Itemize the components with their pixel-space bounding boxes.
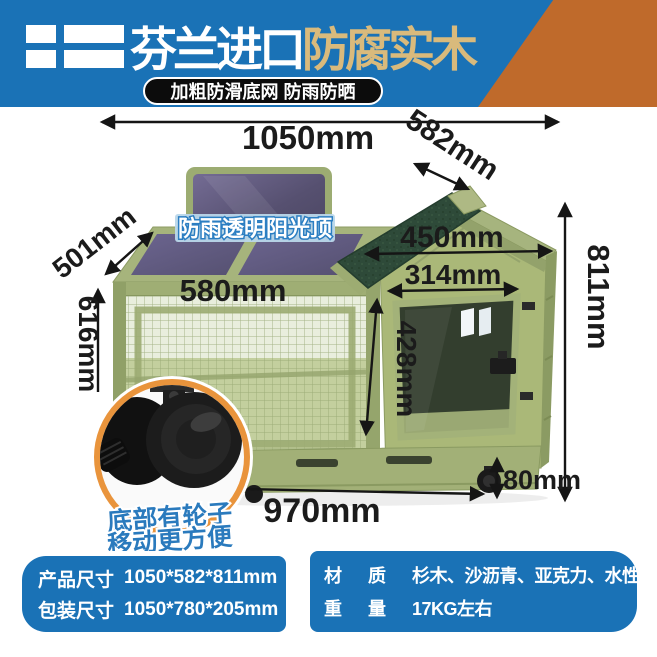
- dim-428-label: 428mm: [391, 321, 422, 418]
- dimension-door-width: 314mm: [389, 259, 517, 291]
- product-size-row: 产品尺寸 1050*582*811mm: [38, 565, 280, 592]
- weight-row: 重 量 17KG左右: [324, 595, 631, 621]
- product-size-label: 产品尺寸: [38, 565, 114, 592]
- material-label: 材: [324, 562, 342, 588]
- roof-callout-label: 防雨透明阳光顶: [178, 216, 332, 241]
- banner-title: 芬兰进口防腐实木: [130, 23, 474, 77]
- dim-580-label: 580mm: [180, 273, 287, 308]
- dim-970-label: 970mm: [263, 492, 380, 530]
- weight-value: 17KG左右: [412, 595, 492, 621]
- spec-box-material: 材 质 杉木、沙沥青、亚克力、水性漆 重 量 17KG左右: [310, 551, 637, 632]
- door-latch: [490, 358, 516, 374]
- wheel-center: [245, 485, 263, 503]
- dimension-depth: 582mm: [400, 107, 505, 189]
- dimension-diagram: 1050mm 582mm 501mm 616mm 580mm 450mm 314…: [0, 107, 657, 551]
- dimension-wheel-height: 80mm: [497, 459, 581, 497]
- banner-title-white: 芬兰进口: [130, 23, 302, 76]
- material-value: 杉木、沙沥青、亚克力、水性漆: [412, 562, 657, 588]
- product-infographic: 芬兰进口防腐实木 加粗防滑底网 防雨防晒: [0, 0, 657, 657]
- product-size-value: 1050*582*811mm: [124, 567, 277, 589]
- dim-80-label: 80mm: [503, 465, 581, 495]
- material-row: 材 质 杉木、沙沥青、亚克力、水性漆: [324, 562, 631, 588]
- dim-314-label: 314mm: [405, 259, 502, 290]
- dimension-total-height: 811mm: [565, 204, 616, 500]
- dim-616-label: 616mm: [73, 296, 104, 393]
- package-size-value: 1050*780*205mm: [124, 599, 278, 621]
- package-size-label: 包装尺寸: [38, 596, 114, 623]
- spec-box-sizes: 产品尺寸 1050*582*811mm 包装尺寸 1050*780*205mm: [22, 556, 286, 632]
- dim-450-label: 450mm: [400, 221, 503, 254]
- weight-label2: 量: [368, 595, 386, 621]
- roof-callout: 防雨透明阳光顶: [175, 214, 335, 242]
- weight-label: 重: [324, 595, 342, 621]
- material-label2: 质: [368, 562, 386, 588]
- dim-1050-label: 1050mm: [242, 119, 374, 156]
- dim-582-label: 582mm: [400, 107, 505, 187]
- banner-title-gold: 防腐实木: [302, 23, 474, 76]
- dim-811-label: 811mm: [581, 244, 616, 349]
- banner-badge: 加粗防滑底网 防雨防晒: [143, 77, 383, 105]
- wheel-inset: 底部有轮子 移动更方便: [91, 376, 253, 551]
- dimension-cage-height: 616mm: [73, 290, 104, 392]
- banner-orange-corner: [478, 0, 657, 107]
- package-size-row: 包装尺寸 1050*780*205mm: [38, 596, 280, 623]
- top-banner: 芬兰进口防腐实木 加粗防滑底网 防雨防晒: [0, 0, 657, 107]
- finland-flag-icon: [26, 25, 124, 68]
